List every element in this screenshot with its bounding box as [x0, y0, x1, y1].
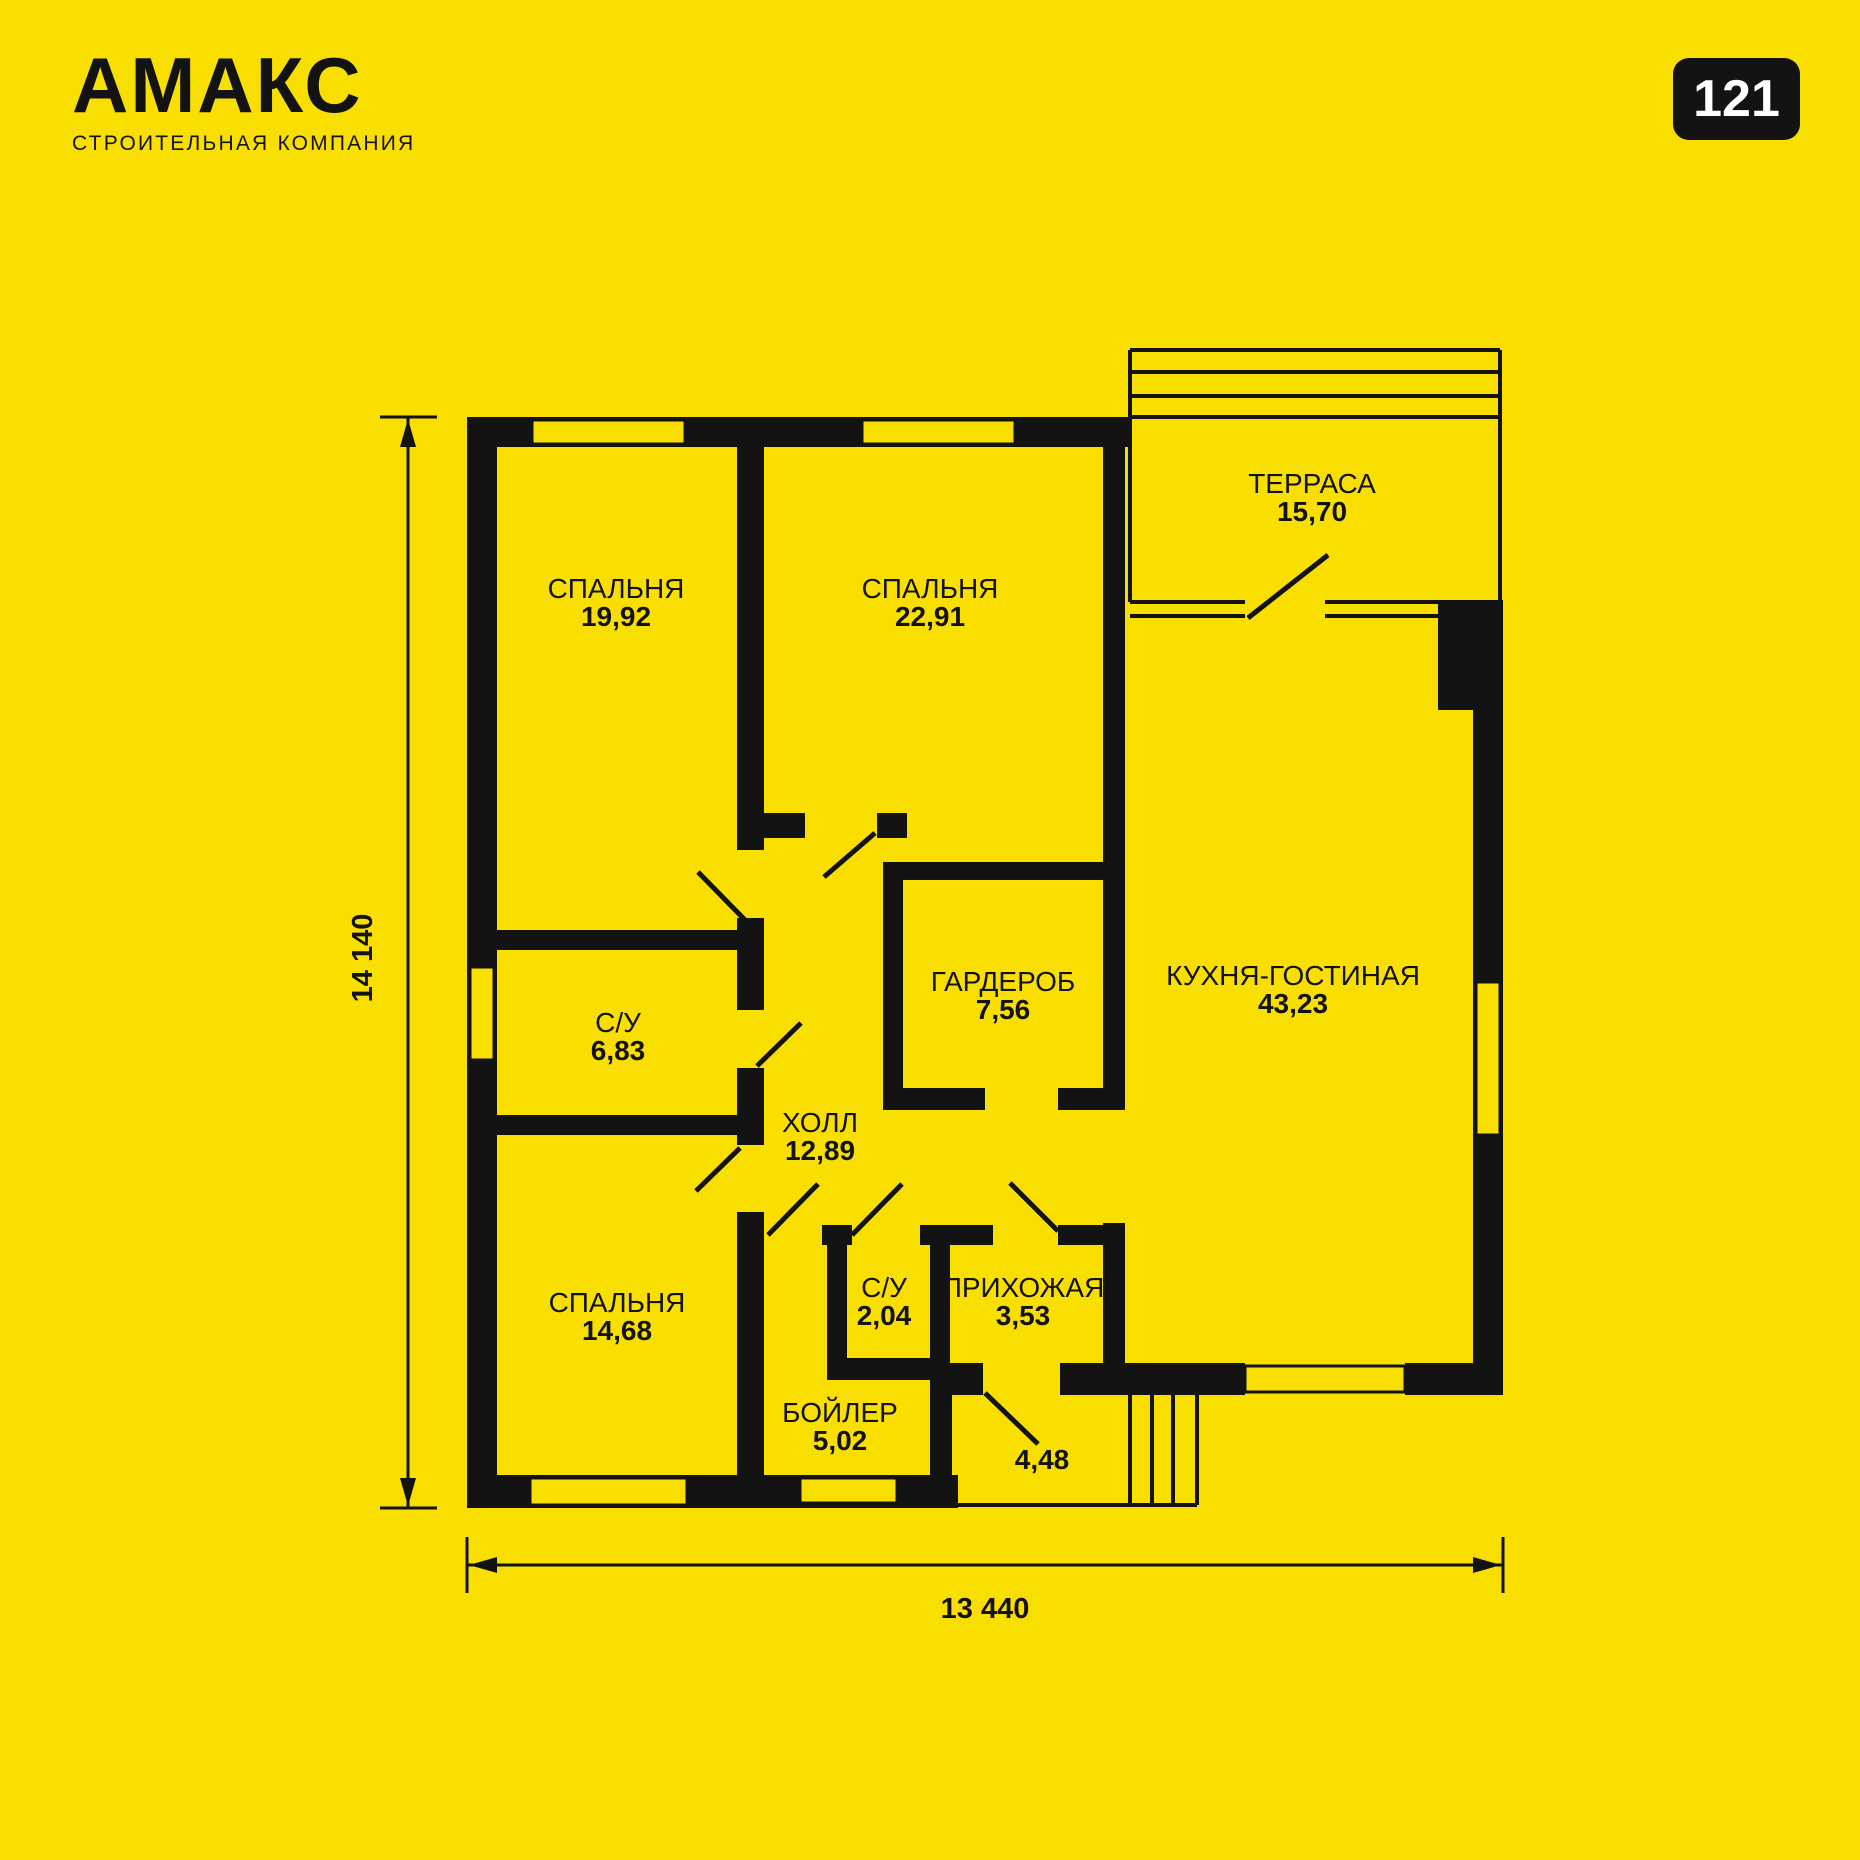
room-area-bedroom-2: 22,91 — [895, 601, 965, 632]
room-label-hall: ХОЛЛ — [782, 1107, 858, 1138]
room-labels: СПАЛЬНЯ19,92СПАЛЬНЯ22,91ТЕРРАСА15,70КУХН… — [548, 468, 1420, 1475]
dimension-width-label: 13 440 — [941, 1593, 1030, 1625]
room-area-wardrobe: 7,56 — [976, 994, 1031, 1025]
room-label-bedroom-3: СПАЛЬНЯ — [549, 1287, 686, 1318]
window — [532, 420, 685, 444]
window — [800, 1478, 897, 1503]
room-area-boiler: 5,02 — [813, 1425, 868, 1456]
room-label-bedroom-1: СПАЛЬНЯ — [548, 573, 685, 604]
room-label-wardrobe: ГАРДЕРОБ — [931, 966, 1076, 997]
room-label-bathroom-1: С/У — [595, 1007, 641, 1038]
door-swing — [985, 1393, 1038, 1444]
room-area-bathroom-1: 6,83 — [591, 1035, 646, 1066]
room-area-entry-hall: 3,53 — [996, 1300, 1051, 1331]
door-swing — [1248, 555, 1328, 618]
dimension-height-label: 14 140 — [347, 914, 379, 1003]
room-area-terrace: 15,70 — [1277, 496, 1347, 527]
window — [470, 967, 494, 1060]
window — [1476, 982, 1500, 1135]
room-area-bedroom-3: 14,68 — [582, 1315, 652, 1346]
room-area-bedroom-1: 19,92 — [581, 601, 651, 632]
floor-plan: 14 140 13 440 СПАЛЬНЯ19,92СПАЛЬНЯ22,91ТЕ… — [0, 0, 1860, 1860]
window — [862, 420, 1015, 444]
door-swing — [696, 1148, 740, 1191]
room-label-bathroom-2: С/У — [861, 1272, 907, 1303]
door-swing — [768, 1184, 818, 1235]
door-swing — [824, 833, 875, 877]
room-area-porch: 4,48 — [1015, 1444, 1070, 1475]
room-label-entry-hall: ПРИХОЖАЯ — [942, 1272, 1105, 1303]
door-swing — [852, 1184, 902, 1235]
room-label-terrace: ТЕРРАСА — [1248, 468, 1376, 499]
door-swing — [757, 1023, 801, 1066]
door-swing — [698, 872, 745, 920]
window — [530, 1478, 687, 1505]
room-label-bedroom-2: СПАЛЬНЯ — [862, 573, 999, 604]
room-area-hall: 12,89 — [785, 1135, 855, 1166]
door-swing — [1010, 1183, 1058, 1231]
window — [1245, 1366, 1405, 1392]
room-label-boiler: БОЙЛЕР — [782, 1397, 898, 1428]
room-area-bathroom-2: 2,04 — [857, 1300, 912, 1331]
room-area-kitchen-living: 43,23 — [1258, 988, 1328, 1019]
poster-canvas: АМАКС СТРОИТЕЛЬНАЯ КОМПАНИЯ 121 — [0, 0, 1860, 1860]
room-label-kitchen-living: КУХНЯ-ГОСТИНАЯ — [1166, 960, 1420, 991]
dimension-height: 14 140 — [347, 417, 437, 1508]
porch-steps — [950, 1395, 1197, 1505]
dimension-width: 13 440 — [467, 1537, 1503, 1625]
